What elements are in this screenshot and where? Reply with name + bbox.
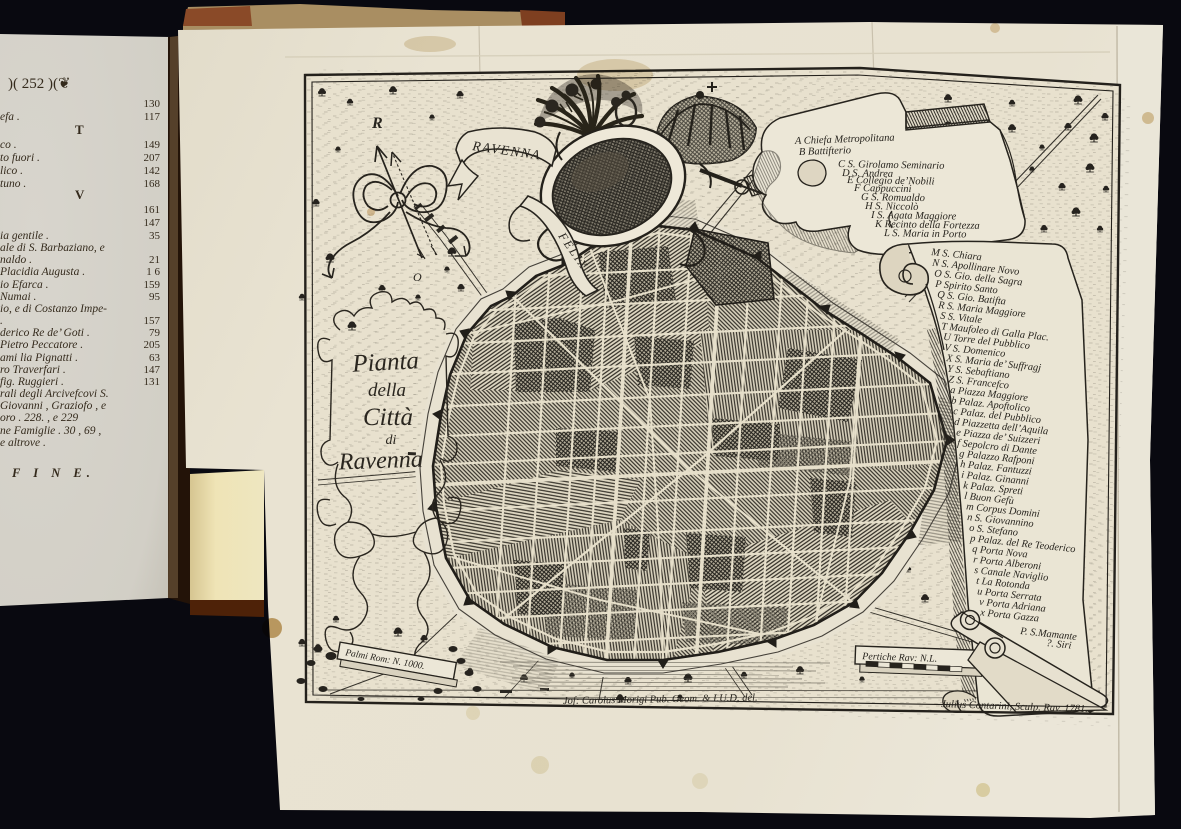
svg-text:derico Re de’ Goti .: derico Re de’ Goti .: [0, 327, 90, 339]
svg-text:Pianta: Pianta: [351, 347, 420, 378]
svg-text:130: 130: [144, 98, 161, 110]
svg-text:to fuori .: to fuori .: [0, 152, 40, 164]
svg-text:io, e di Costanzo Impe-: io, e di Costanzo Impe-: [0, 303, 107, 315]
svg-text:Numai .: Numai .: [0, 291, 36, 303]
svg-text:L S. Maria in Porto: L S. Maria in Porto: [883, 228, 967, 240]
svg-text:ami lia Pignatti .: ami lia Pignatti .: [0, 352, 78, 364]
svg-text:157: 157: [144, 315, 161, 327]
svg-text:)( 252 )(❦: )( 252 )(❦: [8, 76, 71, 92]
svg-text:e altrove .: e altrove .: [0, 437, 46, 449]
svg-text:tuno .: tuno .: [0, 178, 26, 190]
svg-text:ale di S. Barbaziano, e: ale di S. Barbaziano, e: [0, 242, 105, 254]
svg-text:B Battifterio: B Battifterio: [799, 145, 852, 158]
svg-text:R: R: [371, 115, 383, 132]
svg-text:Ravenna: Ravenna: [337, 447, 423, 476]
svg-text:Giovanni , Graziofo , e: Giovanni , Graziofo , e: [0, 400, 106, 412]
svg-text:147: 147: [144, 217, 161, 229]
svg-text:ne Famiglie . 30 , 69 ,: ne Famiglie . 30 , 69 ,: [0, 425, 101, 437]
svg-text:168: 168: [144, 178, 161, 190]
svg-text:fig. Ruggieri .: fig. Ruggieri .: [0, 376, 64, 388]
svg-text:di: di: [386, 433, 397, 448]
svg-text:rali degli Arcivefcovi S.: rali degli Arcivefcovi S.: [0, 388, 109, 400]
svg-text:142: 142: [144, 165, 161, 177]
svg-text:della: della: [368, 380, 406, 401]
svg-text:O: O: [413, 270, 422, 284]
svg-text:co .: co .: [0, 139, 17, 151]
svg-text:79: 79: [149, 327, 161, 339]
svg-text:.: .: [0, 315, 3, 327]
svg-text:147: 147: [144, 364, 161, 376]
svg-text:21: 21: [149, 254, 160, 266]
svg-text:207: 207: [144, 152, 161, 164]
svg-text:95: 95: [149, 291, 161, 303]
svg-text:159: 159: [144, 279, 161, 291]
svg-text:io Efarca .: io Efarca .: [0, 279, 48, 291]
svg-text:Città: Città: [363, 404, 413, 431]
svg-text:ro Traverfari .: ro Traverfari .: [0, 364, 66, 376]
svg-text:63: 63: [149, 352, 161, 364]
svg-text:ia gentile .: ia gentile .: [0, 230, 49, 242]
svg-text:F I N E.: F I N E.: [11, 466, 95, 480]
svg-text:131: 131: [144, 376, 161, 388]
svg-text:T: T: [75, 122, 84, 137]
svg-text:oro . 228. , e 229: oro . 228. , e 229: [0, 412, 78, 424]
svg-text:205: 205: [144, 339, 161, 351]
svg-text:1 6: 1 6: [146, 266, 160, 278]
svg-text:naldo .: naldo .: [0, 254, 32, 266]
svg-text:Placidia Augusta .: Placidia Augusta .: [0, 266, 85, 278]
svg-text:efa .: efa .: [0, 111, 20, 123]
svg-text:lico .: lico .: [0, 165, 23, 177]
svg-text:161: 161: [144, 204, 161, 216]
svg-text:V: V: [75, 187, 85, 202]
svg-text:Pietro Peccatore .: Pietro Peccatore .: [0, 339, 83, 351]
svg-text:117: 117: [144, 111, 161, 123]
svg-text:149: 149: [144, 139, 161, 151]
svg-text:35: 35: [149, 230, 161, 242]
